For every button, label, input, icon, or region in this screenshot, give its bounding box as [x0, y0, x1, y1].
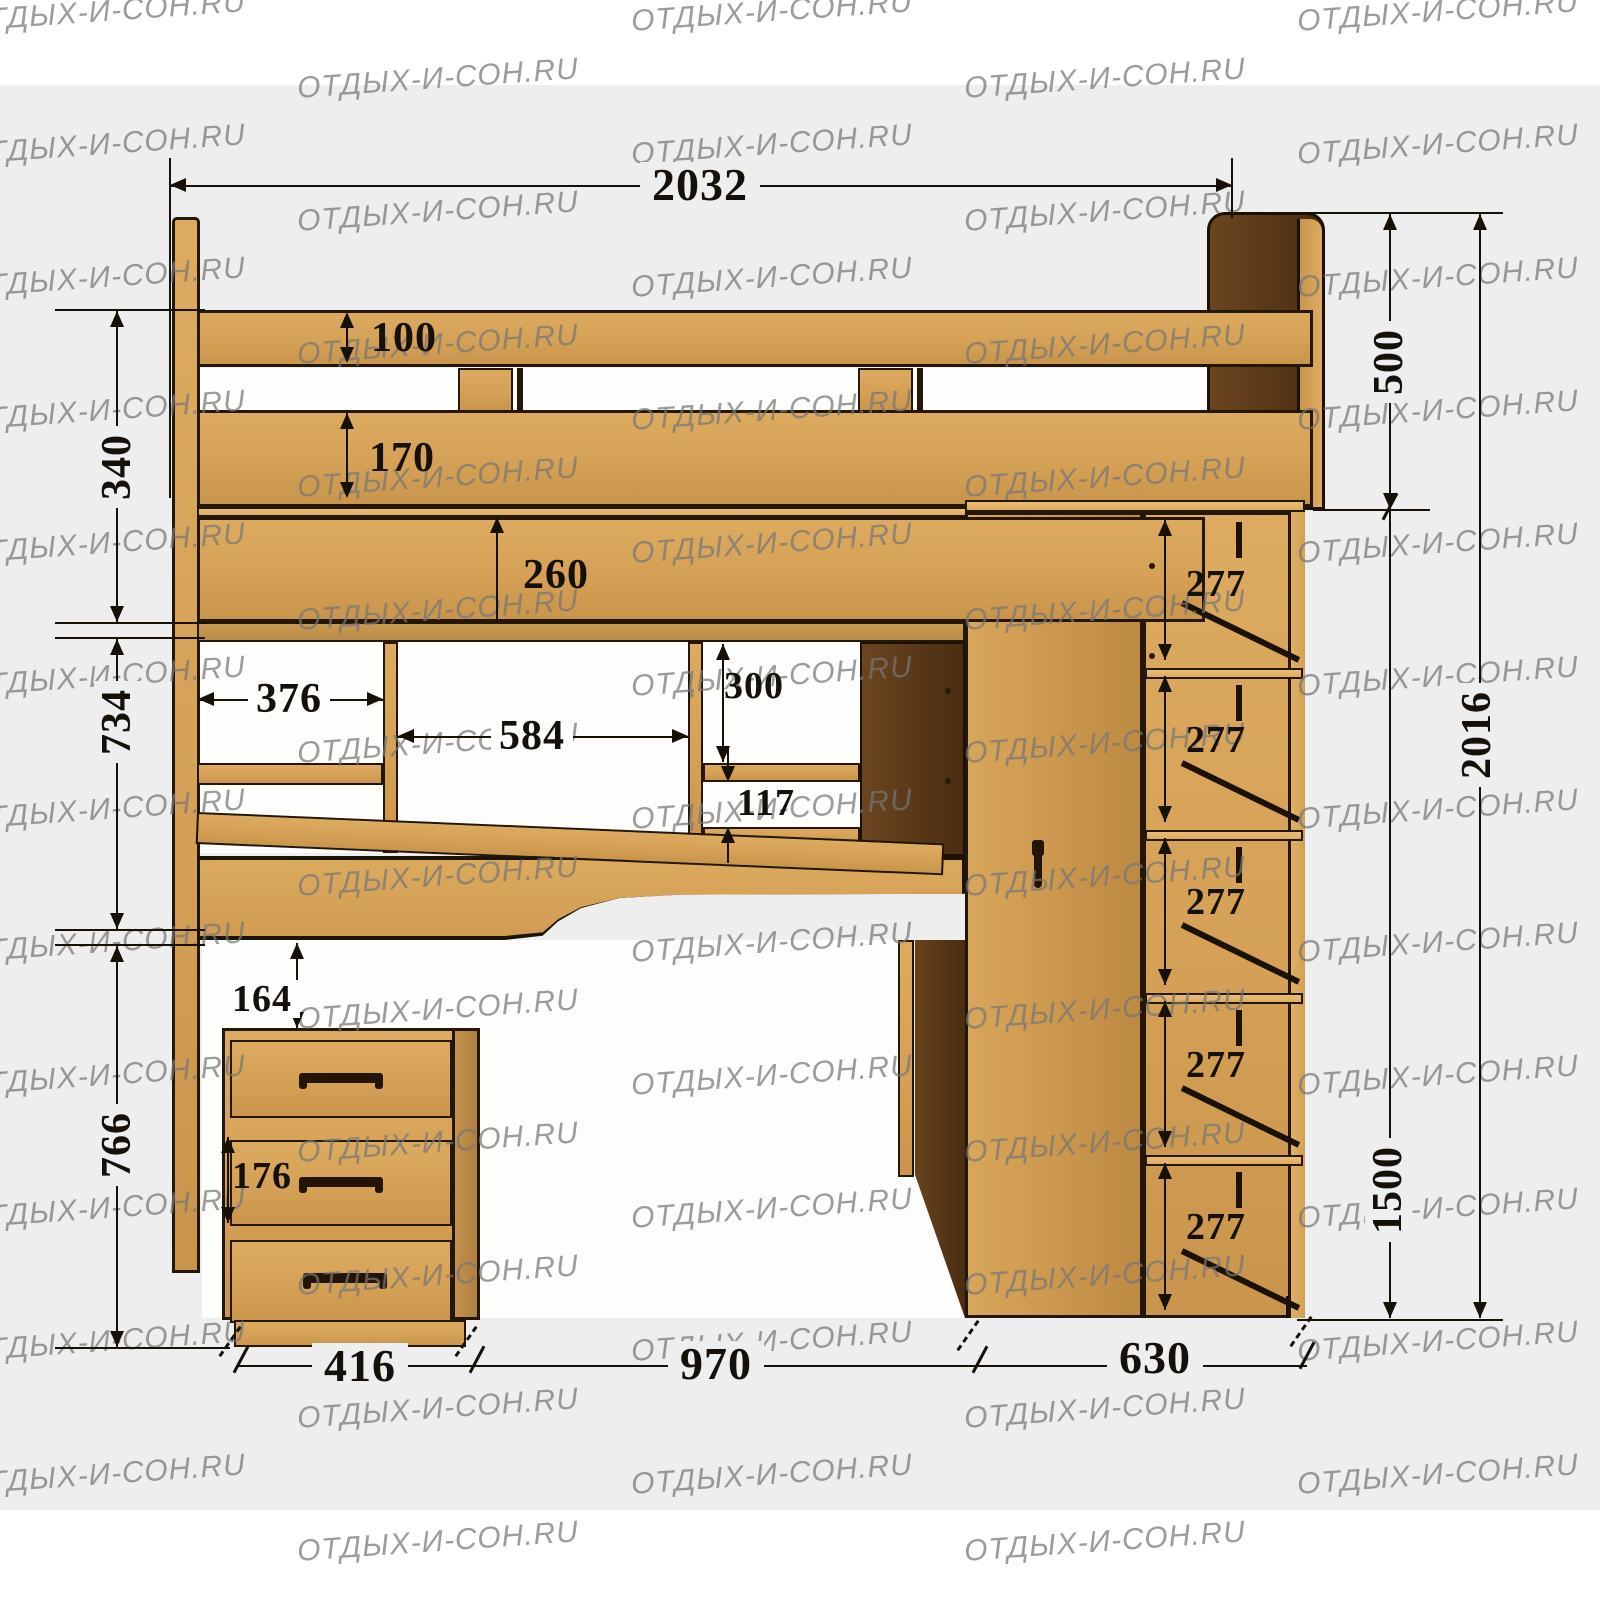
- arrowhead: [1383, 1302, 1397, 1318]
- arrowhead: [1158, 676, 1172, 692]
- arrowhead: [340, 482, 354, 498]
- arrowhead: [340, 312, 354, 328]
- arrowhead: [1158, 644, 1172, 660]
- arrowhead: [110, 639, 124, 655]
- dim-label-340: 340: [94, 426, 140, 508]
- arrowhead: [367, 692, 383, 706]
- arrowhead: [1383, 214, 1397, 230]
- shelf-pin: [1236, 685, 1242, 721]
- dim-line-277: [1164, 1001, 1166, 1147]
- watermark-text: ОТДЫХ-И-СОН.RU: [0, 0, 247, 39]
- dim-label-416: 416: [312, 1343, 408, 1389]
- drawer-handle: [301, 1177, 381, 1187]
- dim-label-376: 376: [248, 678, 330, 720]
- arrowhead: [721, 827, 735, 843]
- arrowhead: [1158, 1163, 1172, 1179]
- rail-slat-edge: [517, 368, 523, 412]
- dim-label-277: 277: [1186, 1208, 1246, 1246]
- dim-label-584: 584: [491, 715, 573, 757]
- arrowhead: [1158, 1131, 1172, 1147]
- drawer-handle: [301, 1073, 381, 1083]
- dim-label-1500: 1500: [1365, 1138, 1411, 1242]
- arrowhead: [290, 943, 304, 959]
- arrowhead: [716, 644, 730, 660]
- watermark-text: ОТДЫХ-И-СОН.RU: [1296, 0, 1580, 39]
- arrowhead: [1158, 806, 1172, 822]
- arrowhead: [1158, 838, 1172, 854]
- arrowhead: [340, 347, 354, 363]
- dim-line-277: [1164, 1163, 1166, 1310]
- dim-line-277: [1164, 838, 1166, 985]
- arrowhead: [221, 1137, 235, 1153]
- dim-label-100: 100: [371, 317, 437, 359]
- arrowhead: [721, 766, 735, 782]
- dim-label-164: 164: [224, 980, 300, 1018]
- furniture-drawing-page: ОТДЫХ-И-СОН.RUОТДЫХ-И-СОН.RUОТДЫХ-И-СОН.…: [0, 0, 1600, 1600]
- dim-label-2016: 2016: [1454, 683, 1500, 787]
- dim-label-277: 277: [1186, 883, 1246, 921]
- ext-tick: [55, 929, 205, 931]
- dim-label-117: 117: [737, 784, 795, 822]
- arrowhead: [110, 606, 124, 622]
- watermark-text: ОТДЫХ-И-СОН.RU: [630, 0, 914, 39]
- shelf-pin: [1236, 1172, 1242, 1208]
- arrowhead: [110, 1331, 124, 1347]
- wardrobe-right-edge: [1288, 512, 1305, 1318]
- arrowhead: [340, 413, 354, 429]
- arrowhead: [198, 692, 214, 706]
- ext-tick: [55, 309, 205, 311]
- arrowhead: [1158, 520, 1172, 536]
- ext-tick: [1297, 1319, 1503, 1321]
- ext-tick: [55, 622, 205, 624]
- ext-tick: [1313, 509, 1430, 511]
- dim-label-170: 170: [369, 437, 435, 479]
- arrowhead: [221, 1207, 235, 1223]
- arrowhead: [490, 517, 504, 533]
- dim-label-277: 277: [1186, 721, 1246, 759]
- watermark-text: ОТДЫХ-И-СОН.RU: [296, 1515, 580, 1569]
- arrowhead: [1158, 969, 1172, 985]
- arrowhead: [1158, 1001, 1172, 1017]
- arrowhead: [110, 311, 124, 327]
- ladder-stile: [172, 217, 200, 1273]
- dim-label-277: 277: [1186, 565, 1246, 603]
- screw-dot: [1149, 653, 1155, 659]
- rail-slat-edge: [917, 368, 923, 412]
- rail-slat: [458, 368, 513, 412]
- ext-tick: [55, 1347, 230, 1349]
- arrowhead: [1473, 214, 1487, 230]
- dim-label-630: 630: [1107, 1335, 1203, 1381]
- dim-label-766: 766: [94, 1104, 140, 1186]
- arrowhead: [1158, 1294, 1172, 1310]
- dim-label-176: 176: [232, 1157, 292, 1195]
- dim-line-277: [1164, 520, 1166, 660]
- arrowhead: [1473, 1302, 1487, 1318]
- shelf-pin: [1236, 522, 1242, 558]
- dim-label-260: 260: [523, 554, 589, 596]
- screw-dot: [945, 688, 951, 694]
- watermark-text: ОТДЫХ-И-СОН.RU: [963, 1515, 1247, 1569]
- dim-label-277: 277: [1186, 1046, 1246, 1084]
- arrowhead: [110, 913, 124, 929]
- screw-dot: [1149, 563, 1155, 569]
- arrowhead: [110, 946, 124, 962]
- ext-line: [169, 158, 171, 498]
- arrowhead: [716, 746, 730, 762]
- ext-tick: [55, 637, 205, 639]
- dim-line-277: [1164, 676, 1166, 822]
- dim-label-970: 970: [668, 1341, 764, 1387]
- screw-dot: [945, 778, 951, 784]
- dim-label-300: 300: [724, 667, 784, 705]
- arrowhead: [398, 729, 414, 743]
- ext-tick: [55, 944, 205, 946]
- dim-label-734: 734: [94, 681, 140, 763]
- dim-label-2032: 2032: [640, 162, 760, 208]
- arrowhead: [170, 178, 186, 192]
- arrowhead: [672, 729, 688, 743]
- dim-label-500: 500: [1366, 321, 1412, 403]
- arrowhead: [1216, 178, 1232, 192]
- wardrobe-top-edge: [965, 500, 1305, 512]
